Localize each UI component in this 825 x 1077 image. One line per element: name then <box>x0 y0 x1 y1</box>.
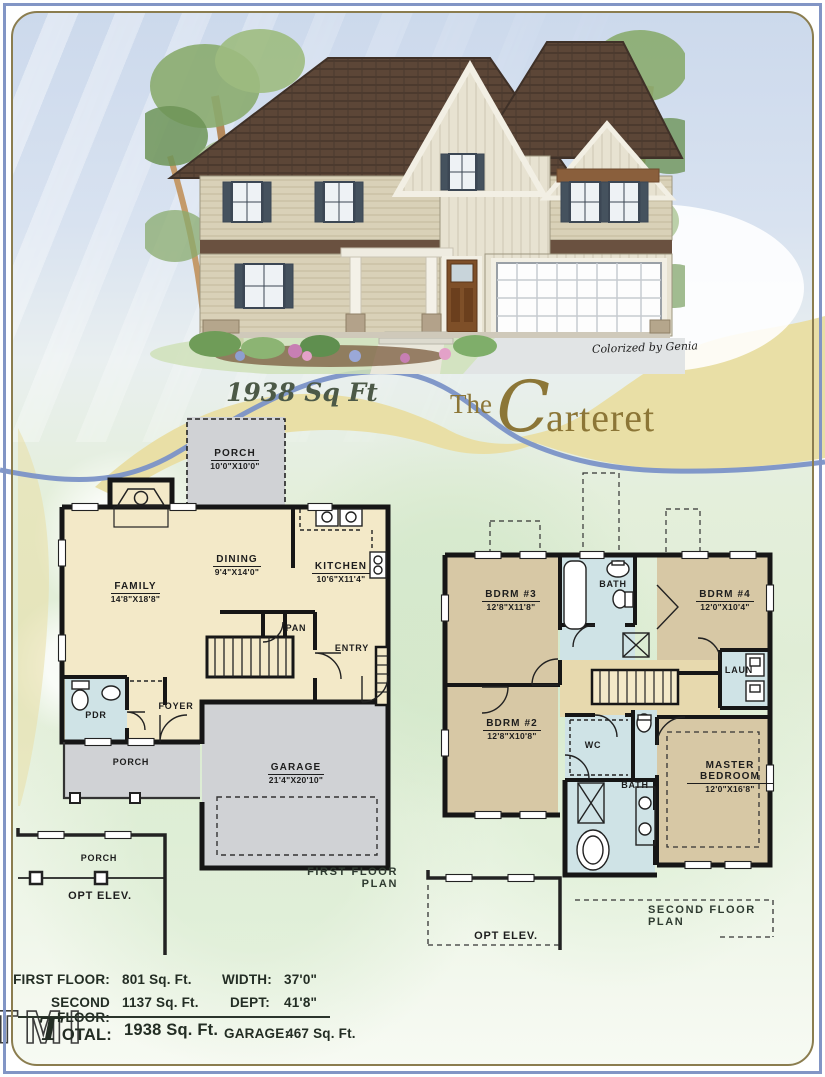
opt1-label: OPT ELEV. <box>52 886 148 904</box>
flyer-sheet: Colorized by Genia 1938 Sq Ft The Carter… <box>0 0 825 1077</box>
room-label-laun: LAUN <box>716 660 762 678</box>
foundation <box>200 332 670 338</box>
room-label-bdrm2: BDRM #2 12'8"X10'8" <box>463 713 561 741</box>
room-label-pdr: PDR <box>76 705 116 723</box>
room-label-bath-top: BATH <box>590 574 636 592</box>
roof-dashed-lines <box>490 473 700 555</box>
room-name: DINING <box>213 554 261 567</box>
stat-label: GARAGE: <box>224 1026 272 1041</box>
first-floor-caption: FIRST FLOOR PLAN <box>283 866 398 890</box>
room-name: KITCHEN <box>312 561 370 574</box>
porch-column <box>350 257 361 315</box>
room-name: PAN <box>283 624 310 635</box>
opt1-porch-label: PORCH <box>60 848 138 866</box>
stat-value: 467 Sq. Ft. <box>286 1026 356 1041</box>
room-label-bdrm3: BDRM #3 12'8"X11'8" <box>462 584 560 612</box>
room-name: FOYER <box>155 702 196 713</box>
stairs-up <box>592 670 678 704</box>
room-dim: 9'4"X14'0" <box>188 568 286 577</box>
room-dim: 10'0"X10'0" <box>187 462 283 471</box>
door-window <box>451 264 473 282</box>
room-label-dining: DINING 9'4"X14'0" <box>188 549 286 577</box>
opt-elev-text: OPT ELEV. <box>471 930 541 943</box>
clerestory-band <box>557 169 659 182</box>
garage-door <box>497 263 661 333</box>
opt-elev-text: OPT ELEV. <box>65 890 135 903</box>
room-label-bath-main: BATH <box>612 775 658 793</box>
stairs <box>207 637 293 677</box>
step <box>379 338 453 344</box>
plan-title: The Carteret <box>450 388 655 441</box>
room-name: BDRM #3 <box>482 589 540 602</box>
stat-label: WIDTH: <box>222 972 270 987</box>
room-label-bdrm4: BDRM #4 12'0"X10'4" <box>676 584 774 612</box>
room-dim: 14'8"X18'8" <box>78 595 193 604</box>
room-name: GARAGE <box>268 762 325 775</box>
stat-value: 801 Sq. Ft. <box>122 972 222 987</box>
room-name: ENTRY <box>332 644 372 655</box>
house-rendering <box>145 6 685 374</box>
first-floor-window <box>235 264 293 308</box>
room-name: BDRM #4 <box>696 589 754 602</box>
room-dim: 12'0"X10'4" <box>676 603 774 612</box>
room-name: WC <box>582 741 605 752</box>
room-name: MASTER BEDROOM <box>687 760 773 784</box>
room-label-foyer: FOYER <box>150 696 202 714</box>
room-name: PDR <box>82 711 109 722</box>
room-label-kitchen: KITCHEN 10'6"X11'4" <box>292 556 390 584</box>
room-name: PORCH <box>211 448 259 461</box>
room-label-garage: GARAGE 21'4"X20'10" <box>246 757 346 785</box>
title-name: Carteret <box>496 388 655 441</box>
room-label-entry: ENTRY <box>328 638 376 656</box>
room-label-porch-top: PORCH 10'0"X10'0" <box>187 443 283 471</box>
room-dim: 12'0"X16'8" <box>680 785 780 794</box>
porch-roof <box>341 248 453 257</box>
room-label-master: MASTER BEDROOM 12'0"X16'8" <box>680 760 780 794</box>
room-label-wc: WC <box>576 735 610 753</box>
room-dim: 21'4"X20'10" <box>246 776 346 785</box>
room-name: BATH <box>618 781 652 792</box>
room-label-family: FAMILY 14'8"X18'8" <box>78 576 193 604</box>
opt2-label: OPT ELEV. <box>458 926 554 944</box>
stat-label: TOTAL: <box>0 1021 112 1045</box>
stat-value: 37'0" <box>284 972 317 987</box>
stat-label: FIRST FLOOR: <box>0 972 110 987</box>
second-floor-caption: SECOND FLOOR PLAN <box>648 904 780 928</box>
porch-column <box>426 257 437 315</box>
sqft-script: 1938 Sq Ft <box>226 378 378 407</box>
room-dim: 10'6"X11'4" <box>292 575 390 584</box>
stats-row: FIRST FLOOR: 801 Sq. Ft. WIDTH: 37'0" <box>0 972 317 987</box>
room-name: PORCH <box>110 758 153 769</box>
stat-value: 1938 Sq. Ft. <box>124 1021 224 1045</box>
room-dim: 12'8"X11'8" <box>462 603 560 612</box>
room-name: FAMILY <box>111 581 159 594</box>
room-name: BDRM #2 <box>483 718 541 731</box>
stats-divider <box>18 1016 330 1018</box>
room-label-porch-front: PORCH <box>92 752 170 770</box>
stone-skirt <box>203 320 239 333</box>
room-name: LAUN <box>722 666 756 677</box>
title-prefix: The <box>450 389 492 419</box>
room-dim: 12'8"X10'8" <box>463 732 561 741</box>
room-label-pan: PAN <box>278 618 314 636</box>
shingle-band-right <box>540 240 672 254</box>
stats-row-total: TOTAL: 1938 Sq. Ft. GARAGE: 467 Sq. Ft. <box>0 1021 356 1045</box>
room-name: PORCH <box>78 854 121 865</box>
stone-skirt <box>650 320 670 333</box>
room-name: BATH <box>596 580 630 591</box>
